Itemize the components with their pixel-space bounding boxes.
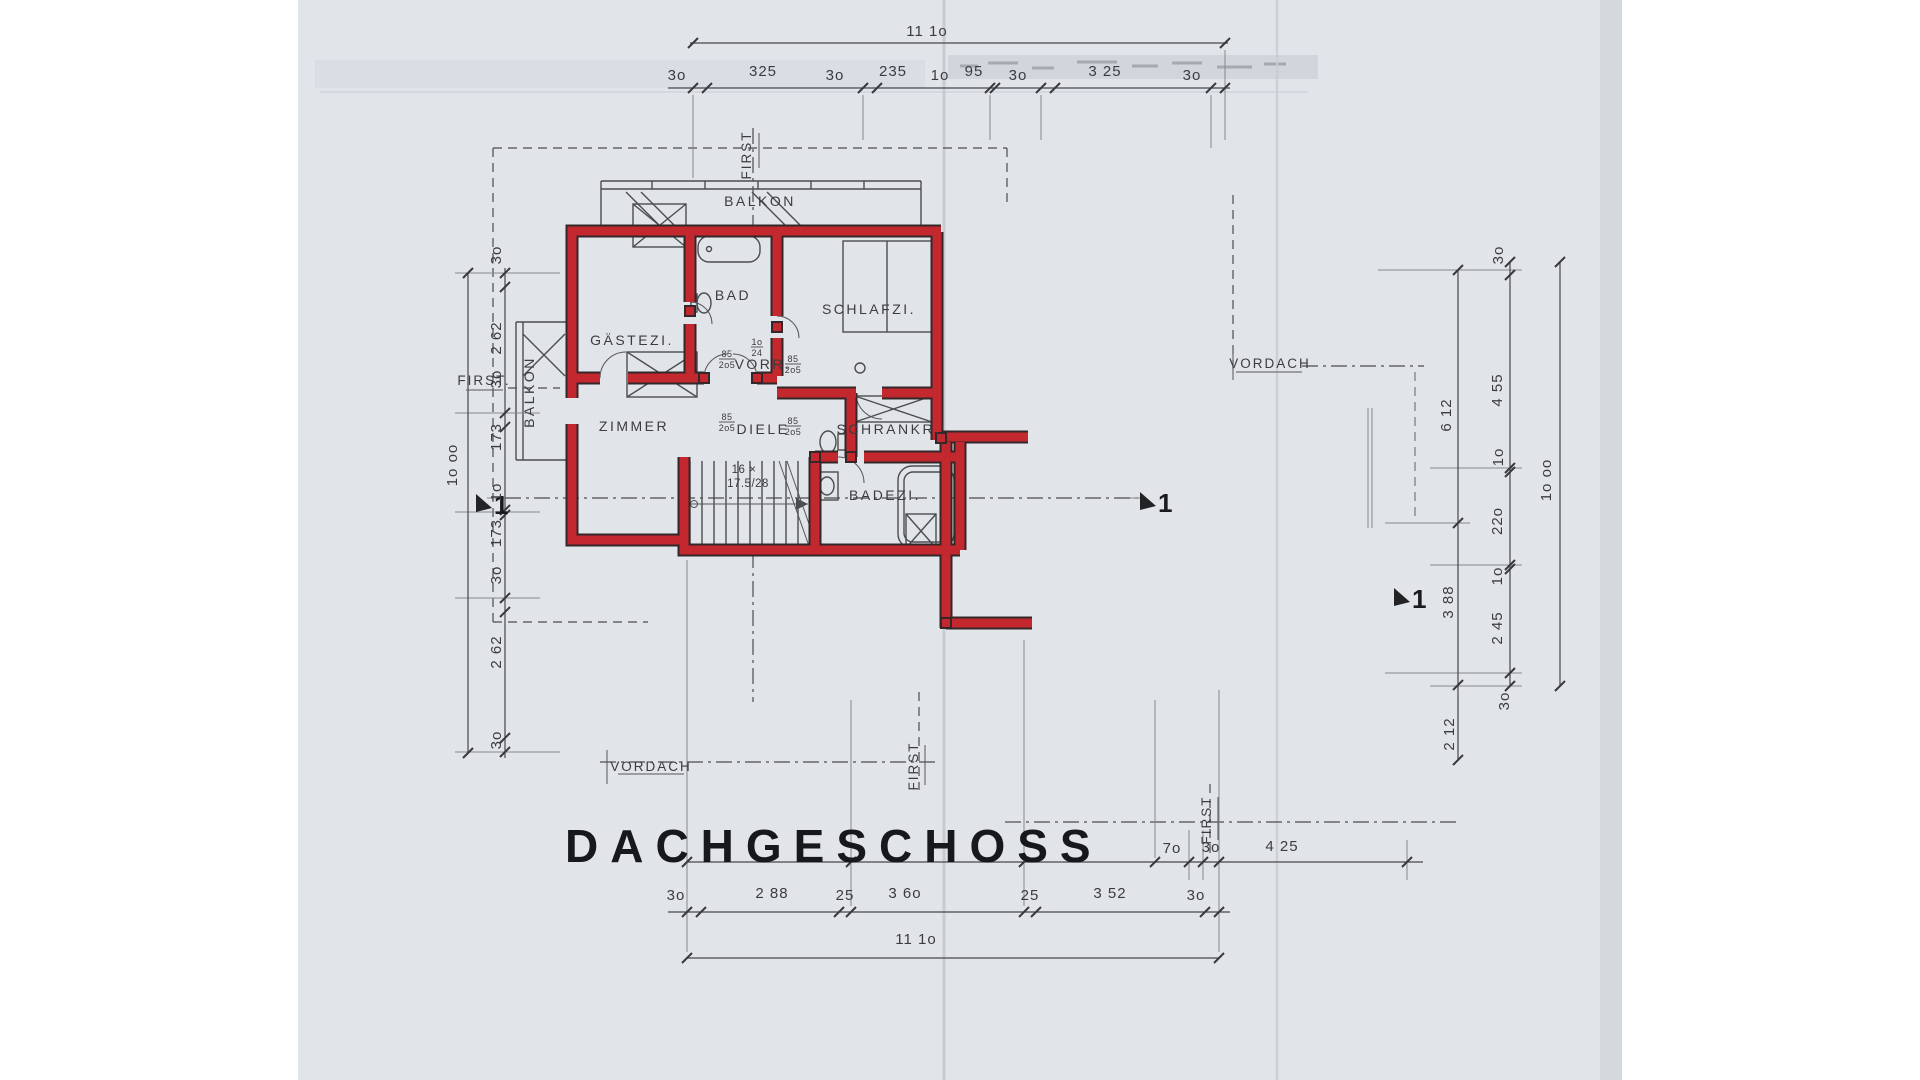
first-top-label: FIRST [739, 131, 754, 180]
dim-bottom-seg: 25 [836, 887, 855, 904]
scanned-floor-plan-page: 1 1 1 BALKON GÄSTEZI. BAD SCHLAFZI. VORR… [0, 0, 1920, 1080]
dim-left-seg: 1o [488, 483, 505, 502]
dim-left-total: 1o oo [444, 444, 461, 487]
dim-top-seg: 1o [931, 67, 950, 84]
dim-right-inner: 2 12 [1441, 717, 1458, 750]
dim-bottom-seg: 25 [1021, 887, 1040, 904]
dim-right-seg: 4 55 [1489, 373, 1506, 406]
room-label-schlafzimmer: SCHLAFZI. [822, 301, 916, 317]
door-tag-width: 85 [721, 349, 732, 359]
dim-right-seg: 1o [1489, 567, 1506, 586]
room-label-gaestezimmer: GÄSTEZI. [590, 332, 674, 348]
door-tag-height: 2o5 [719, 360, 736, 370]
door-tag-width: 1o [751, 337, 762, 347]
dim-top-seg: 235 [879, 63, 907, 80]
dim-top-seg: 3o [826, 67, 845, 84]
stair-riser-tread-label: 17.5/28 [727, 478, 769, 490]
dim-left-seg: 3o [488, 370, 505, 389]
dim-bottom-seg: 3o [667, 887, 686, 904]
dim-bottom-total: 11 1o [895, 931, 936, 948]
door-tag-width: 85 [721, 412, 732, 422]
first-bottom-right-label: FIRST [1199, 796, 1214, 845]
vordach-bottom-label: VORDACH [610, 759, 692, 774]
room-label-zimmer: ZIMMER [599, 418, 669, 434]
dim-bottom-right-seg: 3o [1202, 839, 1221, 856]
dim-bottom-seg: 3 6o [888, 885, 921, 902]
dim-top-total: 11 1o [906, 23, 947, 40]
door-tag-width: 85 [787, 416, 798, 426]
dim-bottom-right-seg: 4 25 [1265, 838, 1298, 855]
room-label-balkon-left: BALKON [521, 356, 537, 428]
dim-top-seg: 325 [749, 63, 777, 80]
dim-right-seg: 1o [1490, 448, 1507, 467]
floor-plan-drawing: 1 1 1 BALKON GÄSTEZI. BAD SCHLAFZI. VORR… [0, 0, 1920, 1080]
dim-bottom-seg: 2 88 [755, 885, 788, 902]
dim-top-seg: 3o [668, 67, 687, 84]
dim-right-seg: 2 45 [1489, 611, 1506, 644]
section-marker-label: 1 [1158, 488, 1172, 518]
room-label-diele: DIELE [737, 421, 790, 437]
door-tag-width: 85 [787, 354, 798, 364]
room-label-vorraum: VORR. [735, 356, 792, 372]
dim-right-total: 1o oo [1538, 459, 1555, 502]
dim-left-seg: 2 62 [488, 635, 505, 668]
dim-bottom-seg: 3o [1187, 887, 1206, 904]
drawing-title: DACHGESCHOSS [565, 820, 1103, 872]
dim-right-seg: 3o [1496, 692, 1513, 711]
door-tag-height: 2o5 [785, 427, 802, 437]
door-tag-height: 2o5 [785, 365, 802, 375]
door-tag-height: 24 [751, 348, 762, 358]
dim-left-seg: 2 62 [488, 321, 505, 354]
dim-left-seg: 173 [488, 519, 505, 547]
dim-left-seg: 3o [488, 246, 505, 265]
dim-right-inner: 3 88 [1440, 585, 1457, 618]
dim-left-seg: 173 [488, 423, 505, 451]
section-marker-label: 1 [1412, 584, 1426, 614]
room-label-badezimmer: BADEZI. [849, 487, 921, 503]
room-label-schrankraum: SCHRANKR. [837, 421, 942, 437]
first-bottom-label: FIRST [906, 742, 921, 791]
door-tag-small: 1o24 [751, 337, 762, 358]
dim-left-seg: 3o [488, 566, 505, 585]
dim-top-seg: 3o [1009, 67, 1028, 84]
dim-right-seg: 3o [1490, 246, 1507, 265]
vordach-right-label: VORDACH [1229, 356, 1311, 371]
dim-top-seg: 3 25 [1088, 63, 1121, 80]
dim-right-inner: 6 12 [1438, 398, 1455, 431]
dim-top-seg: 95 [965, 63, 984, 80]
stair-count-label: 16 × [732, 464, 757, 476]
room-label-balkon-top: BALKON [724, 193, 796, 209]
room-label-bad: BAD [715, 287, 751, 303]
dim-bottom-seg: 3 52 [1093, 885, 1126, 902]
dim-top-seg: 3o [1183, 67, 1202, 84]
dim-left-seg: 3o [488, 731, 505, 750]
dim-right-seg: 22o [1489, 507, 1506, 535]
dim-bottom-right-seg: 7o [1163, 840, 1182, 857]
door-tag-height: 2o5 [719, 423, 736, 433]
